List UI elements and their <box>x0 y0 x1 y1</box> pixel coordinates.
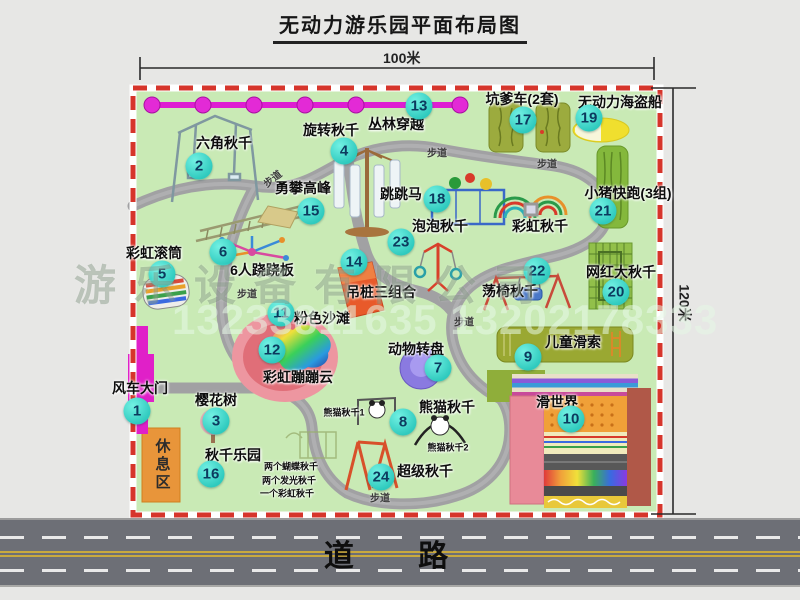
facility-badge-23: 23 <box>388 229 415 256</box>
facility-badge-20: 20 <box>603 279 630 306</box>
facility-badge-10: 10 <box>558 406 585 433</box>
facility-badge-2: 2 <box>186 153 213 180</box>
path-label-5: 步道 <box>370 490 390 505</box>
facility-badge-8: 8 <box>390 409 417 436</box>
width-dimension-label: 100米 <box>383 48 420 68</box>
facility-badge-14: 14 <box>341 249 368 276</box>
facility-label-5: 彩虹滚筒 <box>126 243 182 263</box>
facility-label-14: 吊桩三组合 <box>346 282 416 302</box>
facility-badge-19: 19 <box>576 105 603 132</box>
facility-badge-7: 7 <box>425 355 452 382</box>
facility-badge-24: 24 <box>368 464 395 491</box>
facility-label-24: 超级秋千 <box>397 461 453 481</box>
facility-label-4: 旋转秋千 <box>303 120 359 140</box>
facility-label-18: 跳跳马 <box>380 184 422 204</box>
facility-label-9: 儿童滑索 <box>545 332 601 352</box>
facility-badge-22: 22 <box>524 258 551 285</box>
facility-label-1: 风车大门 <box>112 378 168 398</box>
facility-badge-6: 6 <box>210 239 237 266</box>
facility-label-12: 彩虹蹦蹦云 <box>263 367 333 387</box>
facility-label-8: 熊猫秋千 <box>419 397 475 417</box>
facility-badge-21: 21 <box>590 198 617 225</box>
rest-area-label: 休息区 <box>146 432 178 498</box>
facility-badge-4: 4 <box>331 138 358 165</box>
extra-label-2: 熊猫秋千2 <box>427 441 468 454</box>
path-label-4: 步道 <box>454 314 474 329</box>
facility-badge-17: 17 <box>510 107 537 134</box>
path-label-3: 步道 <box>237 286 257 301</box>
facility-badge-15: 15 <box>298 198 325 225</box>
road-label: 道 路 <box>324 531 476 575</box>
facility-badge-12: 12 <box>259 337 286 364</box>
facility-badge-3: 3 <box>203 408 230 435</box>
extra-label-3: 两个蝴蝶秋千 <box>264 460 318 473</box>
extra-label-0: 彩虹秋千 <box>512 216 568 236</box>
extra-label-5: 一个彩虹秋千 <box>260 487 314 500</box>
slide-world-icon <box>487 370 651 508</box>
facility-label-23: 泡泡秋千 <box>412 216 468 236</box>
facility-badge-18: 18 <box>424 186 451 213</box>
facility-badge-16: 16 <box>198 461 225 488</box>
facility-badge-9: 9 <box>515 344 542 371</box>
facility-label-6: 6人跷跷板 <box>230 260 294 280</box>
height-dimension-label: 120米 <box>675 284 695 321</box>
road: 道 路 <box>0 518 800 587</box>
facility-badge-1: 1 <box>124 398 151 425</box>
facility-label-11: 粉色沙滩 <box>294 308 350 328</box>
screenshot-root: 无动力游乐园平面布局图 <box>0 0 800 600</box>
path-label-2: 步道 <box>537 156 557 171</box>
facility-label-15: 勇攀高峰 <box>275 178 331 198</box>
facility-label-2: 六角秋千 <box>196 133 252 153</box>
facility-badge-13: 13 <box>406 93 433 120</box>
facility-badge-11: 11 <box>268 300 295 327</box>
extra-label-4: 两个发光秋千 <box>262 474 316 487</box>
facility-badge-5: 5 <box>149 261 176 288</box>
path-label-1: 步道 <box>427 145 447 160</box>
extra-label-1: 熊猫秋千1 <box>323 406 364 419</box>
facility-label-22: 荡椅秋千 <box>482 281 538 301</box>
